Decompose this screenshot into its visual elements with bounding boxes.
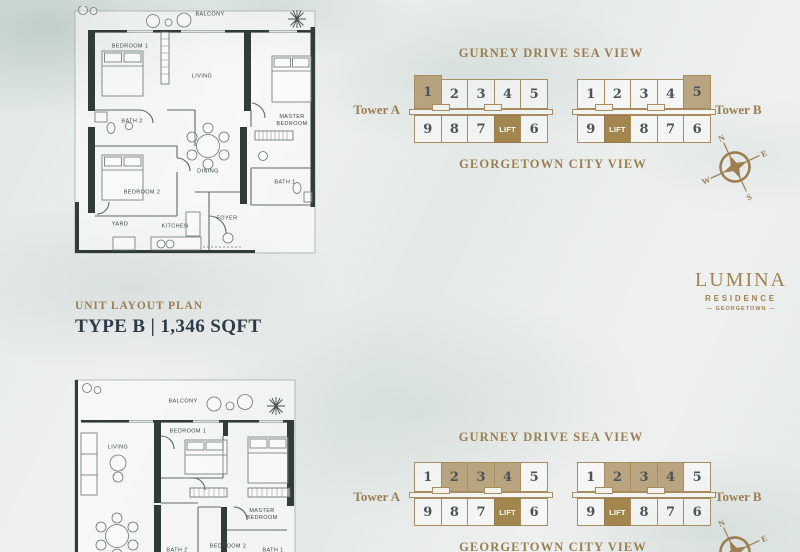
- lift-cell: LIFT: [604, 115, 632, 143]
- door-gaps: [129, 420, 283, 422]
- tower-lower-row: 987LIFT6: [414, 498, 548, 526]
- room-label-master: MASTER BEDROOM: [242, 508, 282, 522]
- tower-a-label-top: Tower A: [338, 102, 400, 118]
- room-label-bath2: BATH 2: [121, 119, 142, 126]
- compass-e: E: [759, 533, 769, 545]
- tower-a-diagram-bottom: 12345 987LIFT6: [414, 458, 548, 526]
- unit-5-cell: 5: [683, 75, 711, 109]
- room-label-bedroom1: BEDROOM 1: [170, 429, 207, 436]
- unit-9-cell: 9: [414, 498, 442, 526]
- unit-8-cell: 8: [441, 498, 469, 526]
- unit-7-cell: 7: [657, 498, 685, 526]
- room-label-living: LIVING: [108, 445, 128, 452]
- room-label-living: LIVING: [192, 74, 212, 81]
- compass-rose-top: N E S W: [697, 129, 773, 205]
- unit-5-cell: 5: [520, 462, 548, 492]
- unit-6-cell: 6: [520, 498, 548, 526]
- room-label-bedroom2: BEDROOM 2: [210, 544, 247, 551]
- compass-s: S: [745, 191, 754, 202]
- unit-8-cell: 8: [441, 115, 469, 143]
- plant-icon: [267, 397, 285, 415]
- tower-a-label-bottom: Tower A: [338, 489, 400, 505]
- lift-cell: LIFT: [494, 115, 522, 143]
- compass-w: W: [700, 174, 712, 187]
- compass-e: E: [759, 148, 769, 160]
- room-label-yard: YARD: [112, 222, 128, 229]
- tower-b-label-top: Tower B: [715, 102, 777, 118]
- unit-5-cell: 5: [683, 462, 711, 492]
- room-label-bath1: BATH 1: [262, 548, 283, 552]
- unit-6-cell: 6: [520, 115, 548, 143]
- lumina-logo: LUMINA RESIDENCE — GEORGETOWN —: [693, 269, 789, 312]
- room-label-bedroom1: BEDROOM 1: [112, 44, 149, 51]
- room-label-kitchen: KITCHEN: [162, 224, 189, 231]
- tower-lower-row: 9LIFT876: [577, 115, 711, 143]
- unit-8-cell: 8: [630, 115, 658, 143]
- unit-heading: UNIT LAYOUT PLAN TYPE B | 1,346 SQFT: [75, 300, 262, 338]
- tower-b-diagram-bottom: 12345 9LIFT876: [577, 458, 711, 526]
- unit-9-cell: 9: [577, 498, 605, 526]
- room-label-bedroom2: BEDROOM 2: [124, 190, 161, 197]
- unit-8-cell: 8: [630, 498, 658, 526]
- compass-rose-bottom: N E S W: [697, 514, 773, 552]
- brochure-page: BALCONY BEDROOM 1 LIVING MASTER BEDROOM …: [0, 0, 800, 552]
- room-label-foyer: FOYER: [217, 216, 238, 223]
- unit-9-cell: 9: [577, 115, 605, 143]
- tower-a-diagram-top: 12345 987LIFT6: [414, 75, 548, 143]
- logo-tagline: — GEORGETOWN —: [693, 306, 789, 312]
- sea-view-label-bottom: GURNEY DRIVE SEA VIEW: [401, 430, 701, 445]
- tower-lower-row: 987LIFT6: [414, 115, 548, 143]
- wardrobe: [161, 32, 169, 84]
- unit-7-cell: 7: [467, 498, 495, 526]
- tower-lower-row: 9LIFT876: [577, 498, 711, 526]
- room-label-bath1: BATH 1: [274, 180, 295, 187]
- compass-n: N: [717, 517, 728, 529]
- room-label-dining: DINING: [197, 169, 219, 176]
- city-view-label-bottom: GEORGETOWN CITY VIEW: [403, 540, 703, 552]
- unit-heading-title: TYPE B | 1,346 SQFT: [75, 316, 262, 338]
- room-label-balcony: BALCONY: [168, 399, 197, 406]
- unit-5-cell: 5: [520, 79, 548, 109]
- logo-residence: RESIDENCE: [693, 294, 789, 303]
- unit-7-cell: 7: [657, 115, 685, 143]
- wardrobe: [190, 488, 227, 497]
- tower-b-label-bottom: Tower B: [715, 489, 777, 505]
- logo-name: LUMINA: [693, 269, 789, 292]
- master-wardrobe: [255, 131, 293, 140]
- door-gaps: [127, 30, 297, 32]
- unit-7-cell: 7: [467, 115, 495, 143]
- plant-icon: [288, 10, 306, 28]
- city-view-label-top: GEORGETOWN CITY VIEW: [403, 157, 703, 172]
- lift-cell: LIFT: [604, 498, 632, 526]
- unit-9-cell: 9: [414, 115, 442, 143]
- unit-heading-kicker: UNIT LAYOUT PLAN: [75, 300, 262, 312]
- tower-b-diagram-top: 12345 9LIFT876: [577, 75, 711, 143]
- sea-view-label-top: GURNEY DRIVE SEA VIEW: [401, 46, 701, 61]
- compass-n: N: [717, 132, 728, 144]
- room-label-bath2: BATH 2: [166, 548, 187, 552]
- room-label-master: MASTER BEDROOM: [272, 114, 312, 128]
- room-label-balcony: BALCONY: [195, 12, 224, 19]
- floor-plan-top-svg: [73, 6, 317, 258]
- master-wardrobe: [248, 488, 290, 497]
- lift-cell: LIFT: [494, 498, 522, 526]
